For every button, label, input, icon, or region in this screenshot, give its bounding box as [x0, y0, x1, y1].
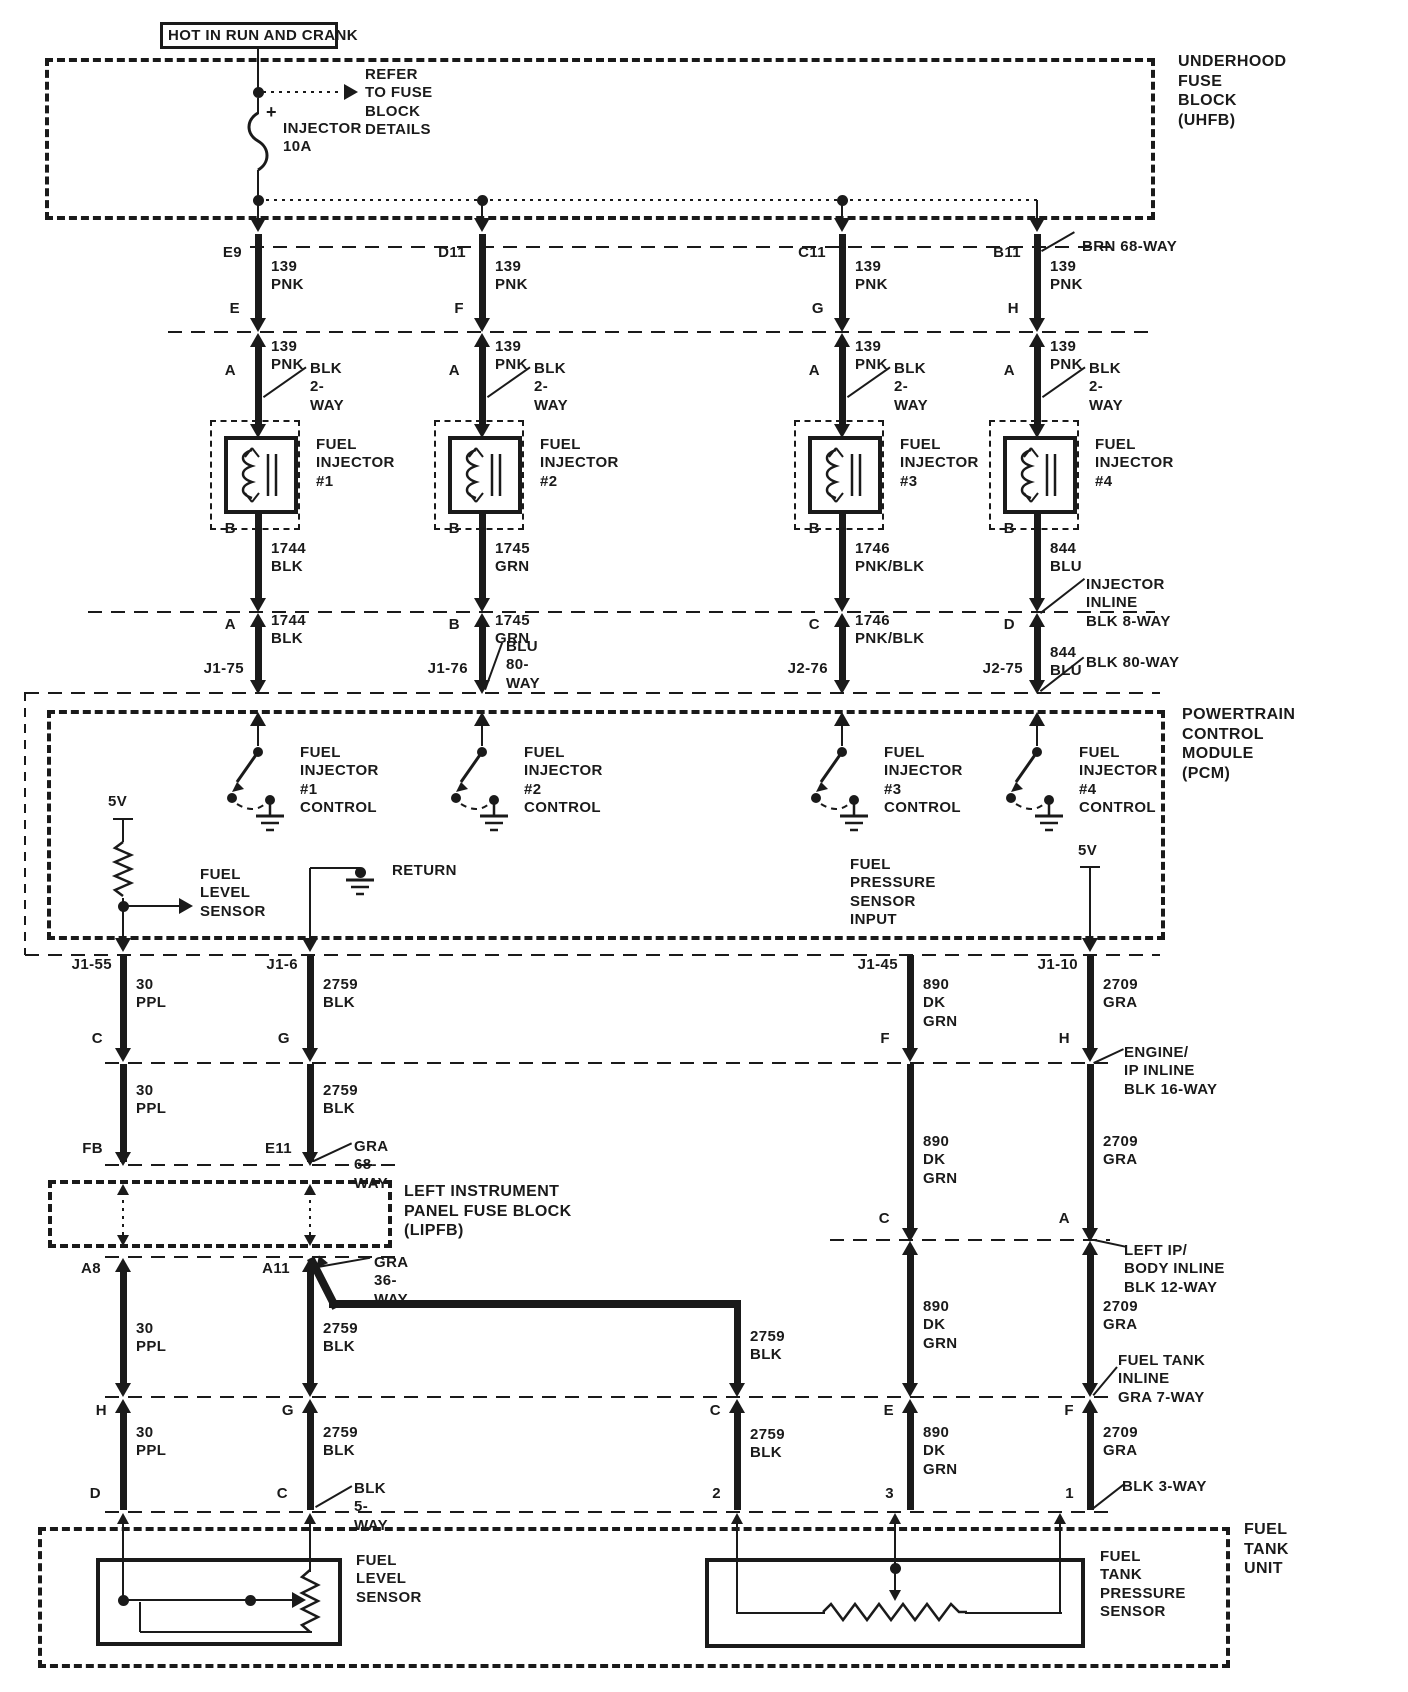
wiring-diagram-canvas: HOT IN RUN AND CRANK UNDERHOOD FUSE BLOC… [0, 0, 1408, 1692]
terminal-letter: H [71, 1402, 107, 1420]
wire-label: 2759 BLK [750, 1426, 785, 1463]
sensor-wire [122, 1516, 124, 1602]
fuel-tank-pressure-sensor-label: FUEL TANK PRESSURE SENSOR [1100, 1548, 1186, 1621]
terminal-letter: A8 [65, 1260, 101, 1278]
arrowhead-icon [117, 1184, 129, 1195]
arrowhead-icon [1054, 1513, 1066, 1524]
wire-label: 139 PNK [495, 258, 528, 295]
terminal-letter: B [424, 520, 460, 538]
terminal-letter: A [1034, 1210, 1070, 1228]
injector-name: FUEL INJECTOR #2 [540, 436, 619, 491]
terminal-letter: A [979, 362, 1015, 380]
terminal-letter: F [854, 1030, 890, 1048]
fuse-bus-line [258, 199, 1037, 201]
pcm-label: POWERTRAIN CONTROL MODULE (PCM) [1182, 705, 1295, 783]
sensor-wire [736, 1516, 738, 1614]
supply-5v-left: 5V [108, 793, 127, 811]
wire-segment [120, 955, 127, 1050]
pcm-connector-face-bottom [25, 954, 1160, 956]
fuse-label: INJECTOR 10A [283, 120, 362, 157]
arrowhead-icon [250, 318, 266, 332]
arrowhead-icon [117, 1513, 129, 1524]
fuel-level-sensor-label: FUEL LEVEL SENSOR [356, 1552, 422, 1607]
wire-segment [839, 514, 846, 600]
ground-icon [344, 877, 376, 899]
callout-leader [1093, 1484, 1124, 1509]
terminal-letter: D [65, 1485, 101, 1503]
injector-coil-icon [1007, 440, 1073, 510]
uhfb-cavity: E9 [180, 244, 242, 262]
wire-label: 1744 BLK [271, 612, 306, 649]
terminal-letter: A11 [246, 1260, 290, 1278]
inline-terminal-letter: A [200, 616, 236, 634]
terminal-letter: E [200, 300, 240, 318]
arrowhead-icon [731, 1513, 743, 1524]
terminal-letter: F [424, 300, 464, 318]
arrowhead-icon [834, 318, 850, 332]
conn-2way-label: BLK 2-WAY [894, 360, 928, 415]
arrowhead-icon [1082, 938, 1098, 952]
terminal-letter: C [252, 1485, 288, 1503]
arrowhead-icon [115, 1152, 131, 1166]
terminal-letter: 1 [1038, 1485, 1074, 1503]
injector-inline-connector-line [88, 611, 1155, 613]
arrowhead-icon [115, 1383, 131, 1397]
harness-connector-line [168, 331, 1155, 333]
arrowhead-icon [902, 1228, 918, 1242]
wire-segment [1087, 1064, 1094, 1232]
uhfb-cavity: C11 [764, 244, 826, 262]
wire-segment [907, 1252, 914, 1385]
injector-name: FUEL INJECTOR #3 [900, 436, 979, 491]
wire-segment [839, 234, 846, 320]
fps-input-label: FUEL PRESSURE SENSOR INPUT [850, 856, 936, 929]
wire-label: 2709 GRA [1103, 1298, 1138, 1335]
wire-segment [734, 1303, 741, 1385]
lipfb-pass-wire [309, 1192, 311, 1236]
wire-segment [307, 1269, 314, 1385]
callout-leader [313, 1142, 352, 1162]
arrowhead-icon [304, 1235, 316, 1246]
wire-segment [1034, 234, 1041, 320]
wire-segment [255, 344, 262, 426]
terminal-letter: C [67, 1030, 103, 1048]
wire-label: 139 PNK [271, 258, 304, 295]
terminal-letter: B [784, 520, 820, 538]
pcm-pin: J1-45 [828, 956, 898, 974]
arrowhead-icon [1029, 318, 1045, 332]
wire-label: 2709 GRA [1103, 1133, 1138, 1170]
callout-leader [1040, 578, 1085, 614]
wire-label: 30 PPL [136, 1320, 166, 1357]
wire-segment [255, 234, 262, 320]
arrowhead-icon [304, 1184, 316, 1195]
wire-segment [1087, 1410, 1094, 1510]
wire-segment [1034, 624, 1041, 682]
terminal-letter: H [979, 300, 1019, 318]
terminal-letter: A [424, 362, 460, 380]
conn-2way-label: BLK 2-WAY [1089, 360, 1123, 415]
wire-label: 890 DK GRN [923, 1133, 958, 1188]
lipfb-label: LEFT INSTRUMENT PANEL FUSE BLOCK (LIPFB) [404, 1182, 572, 1241]
engine-ip-inline-line [105, 1062, 1110, 1064]
lipfb-box [48, 1180, 392, 1248]
uhfb-box [45, 58, 1155, 220]
terminal-letter: C [685, 1402, 721, 1420]
arrowhead-icon [474, 598, 490, 612]
conn-2way-label: BLK 2-WAY [534, 360, 568, 415]
arrowhead-icon [1029, 218, 1045, 232]
blk-80-way-label: BLK 80-WAY [1086, 654, 1179, 672]
inline-terminal-letter: B [424, 616, 460, 634]
wire-segment [1034, 514, 1041, 600]
wire-segment [122, 818, 124, 842]
terminal-letter: B [200, 520, 236, 538]
uhfb-cavity: B11 [959, 244, 1021, 262]
pcm-pin: J1-75 [180, 660, 244, 678]
bottom-connector-line [105, 1511, 1110, 1513]
wire-label: 2759 BLK [323, 1320, 358, 1357]
fuel-level-sensor-label: FUEL LEVEL SENSOR [200, 866, 266, 921]
wire-segment [1089, 866, 1091, 940]
gra-68-way-label: GRA 68-WAY [354, 1138, 388, 1193]
wire-segment [307, 955, 314, 1050]
pcm-pin: J1-10 [1008, 956, 1078, 974]
blu-80-way-label: BLU 80-WAY [506, 638, 540, 693]
terminal-letter: H [1034, 1030, 1070, 1048]
arrowhead-icon [902, 1383, 918, 1397]
wire-label: 30 PPL [136, 976, 166, 1013]
wire-segment [1034, 344, 1041, 426]
return-label: RETURN [392, 862, 457, 880]
wire-segment [255, 514, 262, 600]
engine-ip-inline-label: ENGINE/ IP INLINE BLK 16-WAY [1124, 1044, 1217, 1099]
terminal-letter: G [258, 1402, 294, 1420]
junction-dot-icon [890, 1563, 901, 1574]
pcm-pin: J2-75 [959, 660, 1023, 678]
terminal-letter: A [784, 362, 820, 380]
sensor-wire-h [965, 1612, 1062, 1614]
arrowhead-icon [889, 1590, 901, 1601]
sensor-wire-h [737, 1612, 825, 1614]
wire-segment [1087, 1252, 1094, 1385]
hot-in-run-label: HOT IN RUN AND CRANK [168, 27, 358, 45]
pcm-pin: J1-6 [228, 956, 298, 974]
wire-label: 2709 GRA [1103, 976, 1138, 1013]
wire-segment [120, 1410, 127, 1510]
injector-name: FUEL INJECTOR #1 [316, 436, 395, 491]
wire-label: 890 DK GRN [923, 976, 958, 1031]
arrowhead-icon [474, 218, 490, 232]
arrowhead-icon [115, 1048, 131, 1062]
wire-label: 1745 GRN [495, 540, 530, 577]
fuse-icon [246, 113, 270, 171]
return-wire [309, 868, 311, 940]
refer-arrow-icon [344, 84, 358, 100]
injector-coil-icon [452, 440, 518, 510]
terminal-letter: G [254, 1030, 290, 1048]
wire-label: 1746 PNK/BLK [855, 540, 924, 577]
injector-name: FUEL INJECTOR #4 [1095, 436, 1174, 491]
sensor-wire [1059, 1516, 1061, 1614]
wire-segment [839, 624, 846, 682]
arrowhead-icon [115, 938, 131, 952]
sensor-wire [309, 1516, 311, 1572]
wire-label: 2709 GRA [1103, 1424, 1138, 1461]
return-wire-h [310, 867, 360, 869]
wire-label: 1744 BLK [271, 540, 306, 577]
resistor-icon [823, 1601, 967, 1623]
terminal-letter: G [784, 300, 824, 318]
signal-arrow-icon [179, 898, 193, 914]
terminal-letter: 2 [685, 1485, 721, 1503]
resistor-icon [112, 842, 134, 898]
wire-label: 2759 BLK [323, 1424, 358, 1461]
wire-segment [120, 1269, 127, 1385]
arrowhead-icon [250, 598, 266, 612]
sensor-wiper-wire [894, 1516, 896, 1592]
terminal-letter: F [1038, 1402, 1074, 1420]
conn-2way-label: BLK 2-WAY [310, 360, 344, 415]
uhfb-label: UNDERHOOD FUSE BLOCK (UHFB) [1178, 52, 1287, 130]
wire-label: 139 PNK [271, 338, 304, 375]
wire-segment [907, 1410, 914, 1510]
arrowhead-icon [304, 1513, 316, 1524]
terminal-letter: C [854, 1210, 890, 1228]
bus-drop-wire [257, 200, 259, 219]
wire-label: 139 PNK [495, 338, 528, 375]
arrowhead-icon [250, 218, 266, 232]
pcm-connector-face-top [25, 692, 1160, 694]
wire-label: 2759 BLK [323, 1082, 358, 1119]
terminal-letter: FB [67, 1140, 103, 1158]
refer-note: REFER TO FUSE BLOCK DETAILS [365, 66, 433, 139]
wire-segment [255, 624, 262, 682]
left-ip-inline-label: LEFT IP/ BODY INLINE BLK 12-WAY [1124, 1242, 1225, 1297]
arrowhead-icon [302, 1048, 318, 1062]
wire-segment [907, 955, 914, 1050]
inline-terminal-letter: D [979, 616, 1015, 634]
arrowhead-icon [902, 1048, 918, 1062]
arrowhead-icon [302, 938, 318, 952]
bus-drop-wire [481, 200, 483, 219]
arrowhead-icon [474, 318, 490, 332]
wire-label: 139 PNK [855, 338, 888, 375]
junction-dot-icon [253, 87, 264, 98]
wire-segment [479, 344, 486, 426]
pcm-pin: J1-55 [42, 956, 112, 974]
wire-label: 844 BLU [1050, 540, 1082, 577]
supply-5v-right: 5V [1078, 842, 1097, 860]
junction-dot-icon [355, 867, 366, 878]
sensor-return-wire [139, 1602, 141, 1632]
wire-segment [479, 234, 486, 320]
fuel-tank-inline-label: FUEL TANK INLINE GRA 7-WAY [1118, 1352, 1205, 1407]
refer-leader-line [263, 91, 343, 93]
uhfb-cavity: D11 [404, 244, 466, 262]
signal-tap-line [123, 905, 179, 907]
injector-coil-icon [228, 440, 294, 510]
terminal-letter: 3 [858, 1485, 894, 1503]
left-ip-inline-line [830, 1239, 1110, 1241]
junction-dot-icon [118, 1595, 129, 1606]
variable-resistor-icon [299, 1570, 321, 1634]
arrowhead-icon [302, 1383, 318, 1397]
wire-label: 139 PNK [1050, 258, 1083, 295]
wire-segment [479, 514, 486, 600]
inline-terminal-letter: C [784, 616, 820, 634]
wiper-line [123, 1599, 293, 1601]
wire-segment [734, 1410, 741, 1510]
brn-68-way-label: BRN 68-WAY [1082, 238, 1177, 256]
terminal-letter: E11 [248, 1140, 292, 1158]
pcm-connector-face-side [24, 692, 26, 955]
arrowhead-icon [117, 1235, 129, 1246]
pcm-pin: J1-76 [404, 660, 468, 678]
arrowhead-icon [729, 1383, 745, 1397]
wire-label: 30 PPL [136, 1082, 166, 1119]
terminal-letter: E [858, 1402, 894, 1420]
wire-label: 2759 BLK [750, 1328, 785, 1365]
sensor-return-wire [140, 1631, 312, 1633]
arrowhead-icon [889, 1513, 901, 1524]
lipfb-pass-wire [122, 1192, 124, 1236]
arrowhead-icon [834, 218, 850, 232]
branch-horizontal-wire [329, 1300, 741, 1308]
wire-segment [1087, 955, 1094, 1050]
fuel-tank-unit-label: FUEL TANK UNIT [1244, 1520, 1289, 1579]
terminal-letter: A [200, 362, 236, 380]
wire-label: 890 DK GRN [923, 1298, 958, 1353]
wire-segment [479, 624, 486, 682]
wire-segment [307, 1064, 314, 1162]
fuse-top-wire [257, 98, 259, 114]
pcm-pin: J2-76 [764, 660, 828, 678]
bus-drop-wire [1036, 200, 1038, 219]
junction-dot-icon [245, 1595, 256, 1606]
callout-leader [484, 642, 503, 690]
blk-3-way-label: BLK 3-WAY [1122, 1478, 1207, 1496]
wire-segment [839, 344, 846, 426]
wire-segment [120, 1064, 127, 1162]
wire-label: 2759 BLK [323, 976, 358, 1013]
arrowhead-icon [834, 598, 850, 612]
callout-leader [1041, 231, 1075, 252]
wire-label: 139 PNK [855, 258, 888, 295]
gra36-connector-line [105, 1256, 400, 1258]
injector-inline-label: INJECTOR INLINE BLK 8-WAY [1086, 576, 1171, 631]
callout-leader [1092, 1366, 1117, 1396]
callout-leader [315, 1485, 352, 1508]
wire-label: 1746 PNK/BLK [855, 612, 924, 649]
bus-drop-wire [841, 200, 843, 219]
wire-segment [307, 1410, 314, 1510]
fuel-tank-inline-line [105, 1396, 1110, 1398]
wire-label: 139 PNK [1050, 338, 1083, 375]
terminal-letter: B [979, 520, 1015, 538]
wire-label: 890 DK GRN [923, 1424, 958, 1479]
injector-coil-icon [812, 440, 878, 510]
wire-label: 30 PPL [136, 1424, 166, 1461]
wire-segment [907, 1064, 914, 1232]
